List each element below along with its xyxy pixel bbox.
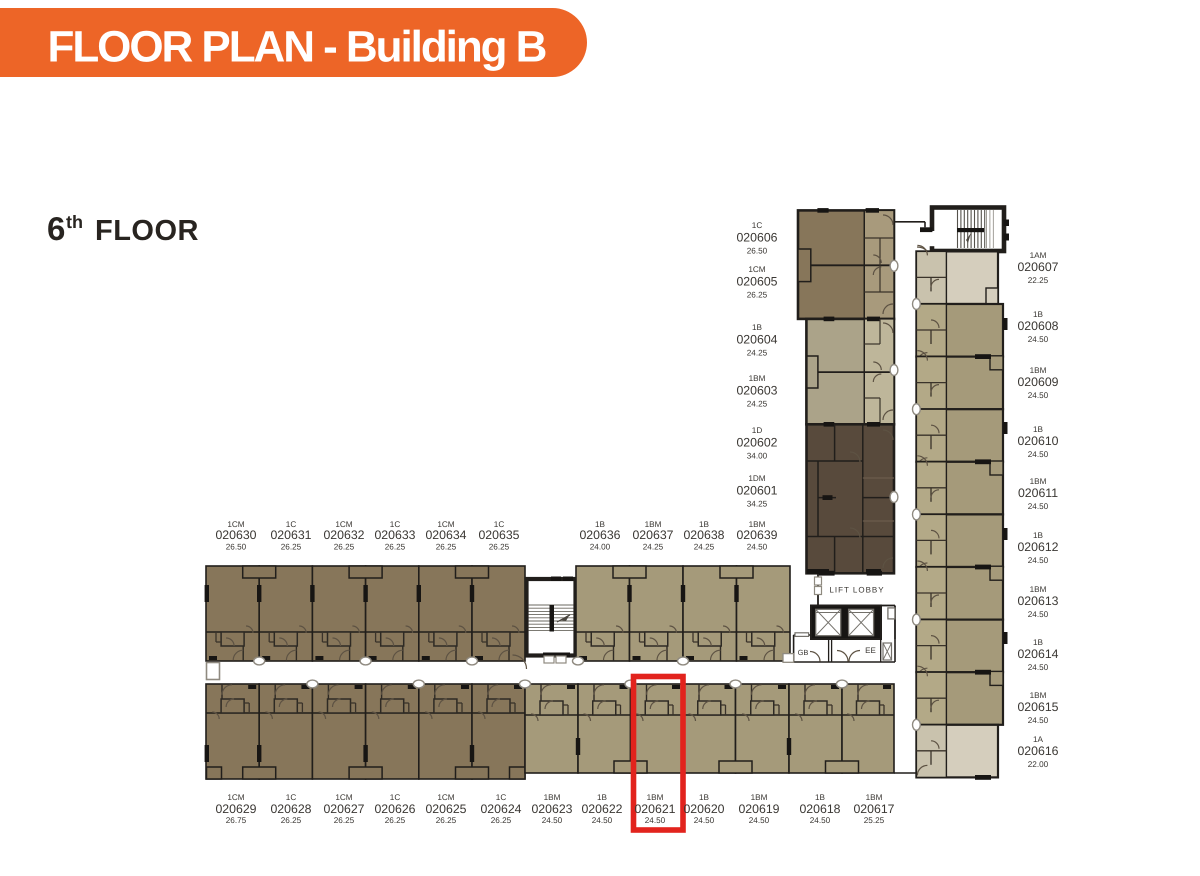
svg-text:020608: 020608 xyxy=(1017,319,1058,333)
svg-text:1CM: 1CM xyxy=(227,793,244,802)
svg-text:1C: 1C xyxy=(496,793,507,802)
svg-text:26.25: 26.25 xyxy=(491,816,512,825)
svg-text:1C: 1C xyxy=(752,221,763,230)
svg-text:020633: 020633 xyxy=(374,528,415,542)
svg-text:020617: 020617 xyxy=(853,802,894,816)
svg-text:020635: 020635 xyxy=(478,528,519,542)
svg-text:020630: 020630 xyxy=(215,528,256,542)
svg-text:24.50: 24.50 xyxy=(592,816,613,825)
svg-text:020615: 020615 xyxy=(1017,700,1058,714)
svg-text:24.25: 24.25 xyxy=(694,543,715,552)
svg-text:020622: 020622 xyxy=(581,802,622,816)
svg-text:020634: 020634 xyxy=(425,528,466,542)
svg-text:020636: 020636 xyxy=(579,528,620,542)
svg-text:020627: 020627 xyxy=(323,802,364,816)
svg-text:020607: 020607 xyxy=(1017,260,1058,274)
svg-text:24.50: 24.50 xyxy=(1028,663,1049,672)
svg-text:26.25: 26.25 xyxy=(436,816,457,825)
svg-text:26.50: 26.50 xyxy=(226,543,247,552)
svg-text:26.25: 26.25 xyxy=(334,543,355,552)
svg-text:020632: 020632 xyxy=(323,528,364,542)
svg-text:26.25: 26.25 xyxy=(489,543,510,552)
svg-text:020619: 020619 xyxy=(738,802,779,816)
svg-text:020628: 020628 xyxy=(270,802,311,816)
svg-text:1AM: 1AM xyxy=(1030,251,1047,260)
svg-text:GB: GB xyxy=(798,648,809,657)
svg-text:020621: 020621 xyxy=(634,802,675,816)
svg-text:24.50: 24.50 xyxy=(810,816,831,825)
svg-text:020616: 020616 xyxy=(1017,744,1058,758)
svg-text:020604: 020604 xyxy=(736,333,777,347)
svg-text:020638: 020638 xyxy=(683,528,724,542)
svg-text:1CM: 1CM xyxy=(437,793,454,802)
svg-text:1BM: 1BM xyxy=(866,793,883,802)
svg-text:1D: 1D xyxy=(752,426,763,435)
svg-text:EE: EE xyxy=(865,646,876,655)
svg-text:1CM: 1CM xyxy=(335,793,352,802)
svg-text:26.25: 26.25 xyxy=(385,816,406,825)
svg-text:26.75: 26.75 xyxy=(226,816,247,825)
svg-text:24.50: 24.50 xyxy=(747,543,768,552)
svg-text:020611: 020611 xyxy=(1018,486,1058,500)
svg-text:020629: 020629 xyxy=(215,802,256,816)
svg-text:LIFT LOBBY: LIFT LOBBY xyxy=(829,586,884,595)
svg-text:26.25: 26.25 xyxy=(436,543,457,552)
svg-text:020623: 020623 xyxy=(531,802,572,816)
svg-text:1BM: 1BM xyxy=(1030,477,1047,486)
svg-text:24.25: 24.25 xyxy=(643,543,664,552)
svg-text:020639: 020639 xyxy=(736,528,777,542)
svg-text:24.50: 24.50 xyxy=(694,816,715,825)
svg-text:25.25: 25.25 xyxy=(864,816,885,825)
svg-text:1B: 1B xyxy=(1033,638,1044,647)
svg-text:1BM: 1BM xyxy=(751,793,768,802)
svg-text:26.25: 26.25 xyxy=(747,291,768,300)
svg-text:020631: 020631 xyxy=(270,528,311,542)
svg-text:020625: 020625 xyxy=(425,802,466,816)
svg-text:1B: 1B xyxy=(699,793,710,802)
svg-text:1BM: 1BM xyxy=(647,793,664,802)
svg-text:1B: 1B xyxy=(1033,531,1044,540)
svg-text:1BM: 1BM xyxy=(749,374,766,383)
svg-text:1BM: 1BM xyxy=(1030,366,1047,375)
svg-text:FLOOR: FLOOR xyxy=(95,215,199,247)
svg-text:020603: 020603 xyxy=(736,384,777,398)
svg-text:1C: 1C xyxy=(390,793,401,802)
svg-text:020612: 020612 xyxy=(1017,540,1058,554)
svg-text:1B: 1B xyxy=(597,793,608,802)
svg-text:1B: 1B xyxy=(1033,425,1044,434)
svg-text:34.00: 34.00 xyxy=(747,452,768,461)
svg-text:020613: 020613 xyxy=(1017,594,1058,608)
svg-text:020605: 020605 xyxy=(736,275,777,289)
svg-text:1A: 1A xyxy=(1033,735,1044,744)
svg-text:24.50: 24.50 xyxy=(749,816,770,825)
svg-text:34.25: 34.25 xyxy=(747,500,768,509)
svg-text:24.50: 24.50 xyxy=(1028,450,1049,459)
svg-text:24.25: 24.25 xyxy=(747,349,768,358)
svg-text:1BM: 1BM xyxy=(1030,585,1047,594)
svg-text:020602: 020602 xyxy=(736,436,777,450)
svg-text:020626: 020626 xyxy=(374,802,415,816)
svg-text:24.00: 24.00 xyxy=(590,543,611,552)
svg-text:020637: 020637 xyxy=(632,528,673,542)
svg-text:24.50: 24.50 xyxy=(1028,716,1049,725)
svg-text:24.50: 24.50 xyxy=(542,816,563,825)
svg-text:26.50: 26.50 xyxy=(747,247,768,256)
svg-text:24.50: 24.50 xyxy=(1028,610,1049,619)
svg-text:24.50: 24.50 xyxy=(1028,391,1049,400)
svg-text:6: 6 xyxy=(47,210,65,247)
svg-text:020620: 020620 xyxy=(683,802,724,816)
svg-text:1BM: 1BM xyxy=(544,793,561,802)
svg-text:1B: 1B xyxy=(1033,310,1044,319)
svg-text:020618: 020618 xyxy=(799,802,840,816)
svg-text:22.25: 22.25 xyxy=(1028,276,1049,285)
svg-text:22.00: 22.00 xyxy=(1028,760,1049,769)
svg-text:1B: 1B xyxy=(815,793,826,802)
svg-text:020601: 020601 xyxy=(736,484,777,498)
svg-text:1BM: 1BM xyxy=(1030,691,1047,700)
svg-text:1B: 1B xyxy=(752,323,763,332)
svg-text:24.50: 24.50 xyxy=(1028,502,1049,511)
svg-text:24.50: 24.50 xyxy=(1028,556,1049,565)
svg-text:th: th xyxy=(66,212,83,232)
svg-text:1CM: 1CM xyxy=(748,265,765,274)
svg-text:24.50: 24.50 xyxy=(645,816,666,825)
svg-text:26.25: 26.25 xyxy=(334,816,355,825)
svg-text:26.25: 26.25 xyxy=(281,543,302,552)
svg-text:1C: 1C xyxy=(286,793,297,802)
svg-text:24.50: 24.50 xyxy=(1028,335,1049,344)
svg-text:FLOOR PLAN - Building B: FLOOR PLAN - Building B xyxy=(48,23,546,72)
svg-text:1DM: 1DM xyxy=(748,474,765,483)
svg-text:26.25: 26.25 xyxy=(281,816,302,825)
svg-text:020614: 020614 xyxy=(1017,647,1058,661)
svg-text:020606: 020606 xyxy=(736,231,777,245)
svg-text:24.25: 24.25 xyxy=(747,400,768,409)
svg-text:020624: 020624 xyxy=(480,802,521,816)
svg-text:020609: 020609 xyxy=(1017,375,1058,389)
svg-text:020610: 020610 xyxy=(1017,434,1058,448)
svg-text:26.25: 26.25 xyxy=(385,543,406,552)
